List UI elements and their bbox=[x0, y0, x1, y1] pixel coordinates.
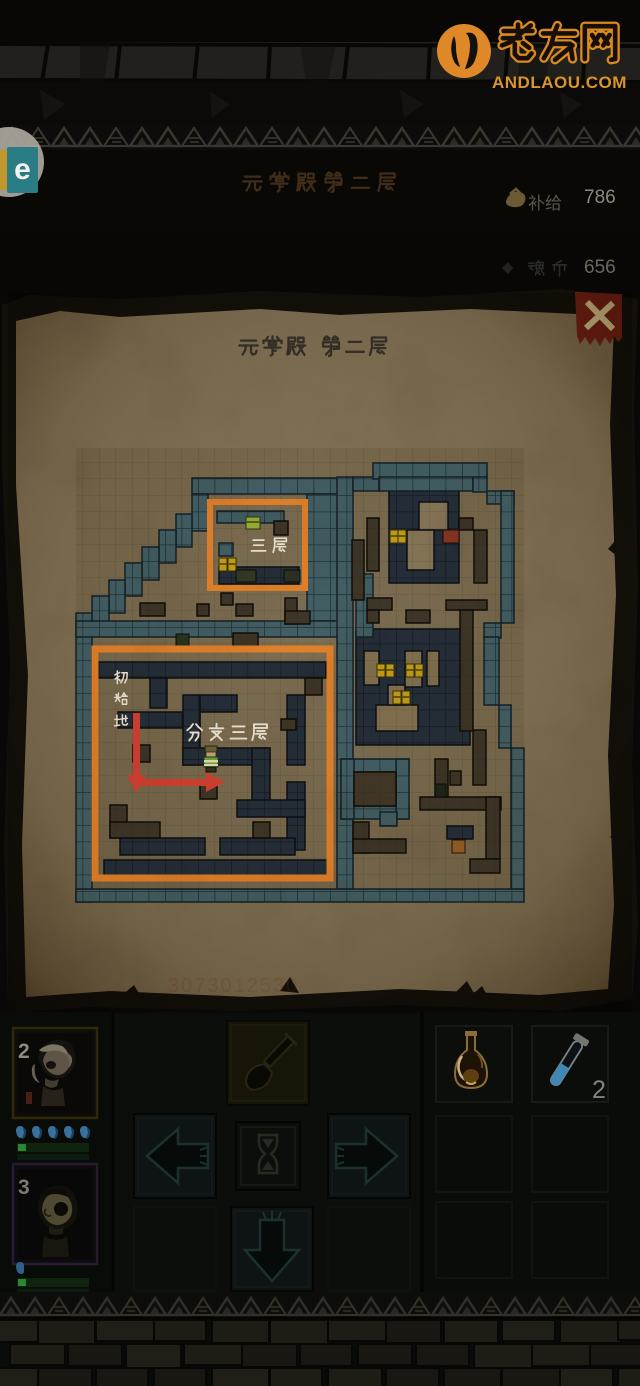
svg-text:2: 2 bbox=[18, 1040, 30, 1063]
svg-text:2: 2 bbox=[592, 1076, 606, 1104]
svg-text:3073012530: 3073012530 bbox=[168, 975, 299, 997]
svg-text:3: 3 bbox=[18, 1176, 30, 1199]
